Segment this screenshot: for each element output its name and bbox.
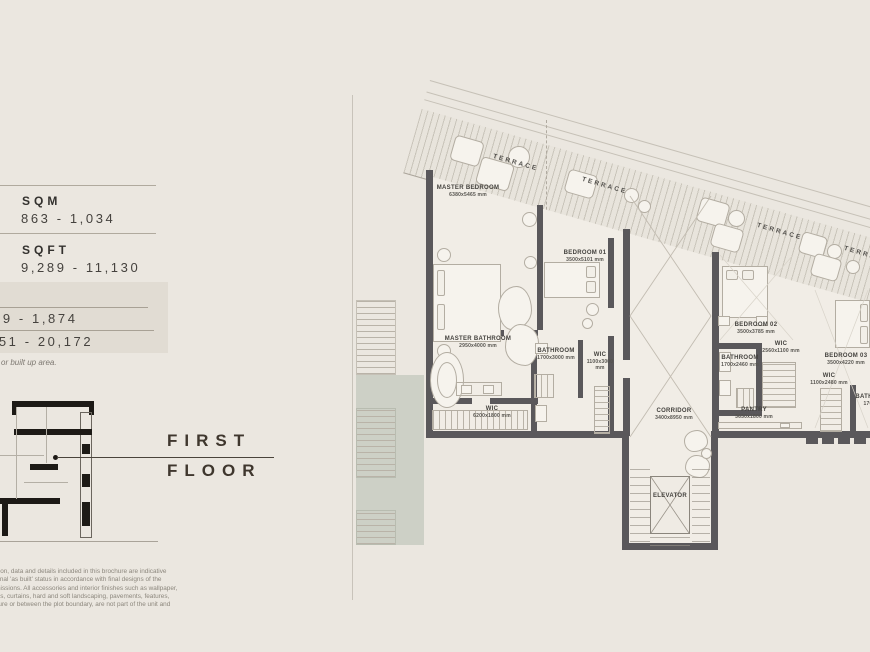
sqft-value: 9,289 - 11,130 (21, 260, 140, 275)
wardrobe (594, 386, 610, 434)
planter-box (822, 436, 834, 444)
section-line (16, 407, 17, 499)
sink (483, 385, 494, 394)
side-table (524, 256, 537, 269)
room-label: BEDROOM 033500x4220 mm (825, 353, 868, 366)
sink (461, 385, 472, 394)
pillow (586, 266, 596, 278)
room-label: WIC6200x1800 mm (473, 406, 511, 419)
wardrobe (820, 388, 842, 432)
divider (0, 307, 148, 308)
pillow (437, 304, 445, 330)
room-label: CORRIDOR3400x8950 mm (655, 408, 693, 421)
disclaimer-line: rmation, data and details included in th… (0, 568, 186, 576)
room-label: BATHROOM1700x2460 mm (721, 355, 759, 368)
pillow (860, 326, 868, 344)
disclaimer-line: goods, curtains, hard and soft landscapi… (0, 593, 186, 601)
terrace-table (846, 260, 860, 274)
room-label: WIC2560x1100 mm (762, 341, 799, 354)
room-label: BEDROOM 013500x5101 mm (564, 250, 607, 263)
terrace-table (638, 200, 651, 213)
room-label: WIC1100x2480 mm (810, 373, 847, 386)
shower (534, 374, 554, 398)
floor-title-line1: FIRST (167, 431, 251, 451)
toilet (535, 405, 547, 422)
wall-segment (623, 229, 630, 360)
floor-title-line2: FLOOR (167, 461, 262, 481)
pillow (437, 270, 445, 296)
terrace-table (728, 210, 745, 227)
section-line (24, 482, 68, 483)
room-label: BATHROOM1700x29 (855, 394, 870, 407)
planter-hatch (356, 300, 396, 375)
room-label: ELEVATOR (653, 493, 687, 499)
section-slab (12, 401, 94, 407)
bathtub-inner (437, 362, 457, 398)
room-label: BATHROOM1700x3000 mm (537, 348, 575, 361)
ottoman (582, 318, 593, 329)
plot-range-sqm: 49 - 1,874 (0, 311, 78, 326)
pillow (742, 270, 754, 280)
disclaimer-line: permissions. All accessories and interio… (0, 585, 186, 593)
wall-segment (537, 205, 543, 330)
room-label: MASTER BEDROOM6380x5465 mm (437, 185, 500, 198)
room-label: BEDROOM 023500x3785 mm (735, 322, 778, 335)
plot-range-box: 49 - 1,874 951 - 20,172 (0, 282, 168, 353)
divider (0, 330, 154, 331)
brochure-page: { "colors": { "background": "#ebe7e0", "… (0, 0, 870, 652)
planter-hatch (356, 408, 396, 478)
disclaimer-line: the final 'as built' status in accordanc… (0, 576, 186, 584)
wall-segment (622, 438, 629, 550)
divider (0, 233, 156, 234)
room-label: PANTRY3650x1800 mm (735, 407, 773, 420)
floor-leader-line (57, 457, 274, 458)
room-label: MASTER BATHROOM2950x4000 mm (445, 336, 511, 349)
divider (0, 185, 156, 186)
wall-segment (712, 252, 719, 432)
ground-line (0, 541, 158, 542)
wall-segment (712, 343, 762, 349)
nightstand (718, 316, 730, 326)
sqm-label: SQM (22, 194, 61, 208)
stair-hatch (650, 534, 690, 546)
pillow (586, 281, 596, 293)
nightstand (437, 248, 451, 262)
wardrobe (762, 362, 796, 408)
stair-hatch (692, 468, 710, 542)
pantry-sink (780, 423, 790, 428)
sqft-label: SQFT (22, 243, 70, 257)
planter-box (854, 436, 866, 444)
ottoman (586, 303, 599, 316)
boundary-dashed-line (546, 120, 547, 220)
wall-segment (623, 378, 630, 436)
section-line (46, 407, 47, 463)
planter-hatch (356, 510, 396, 545)
section-slab (30, 464, 58, 470)
wall-segment (850, 385, 856, 435)
pillow (860, 304, 868, 322)
sqm-value: 863 - 1,034 (21, 211, 115, 226)
section-slab (14, 429, 92, 435)
wall-segment (711, 438, 718, 550)
section-slab (0, 498, 60, 504)
decor-stone (701, 448, 712, 459)
stair-hatch (630, 468, 650, 542)
shower (736, 388, 754, 408)
section-window (82, 474, 90, 487)
section-window (82, 444, 90, 454)
wall-segment (608, 238, 614, 308)
section-wall (2, 504, 8, 536)
section-line (0, 455, 44, 456)
disclaimer-line: rochure or between the plot boundary, ar… (0, 601, 186, 609)
toilet (719, 380, 731, 396)
section-window (82, 502, 90, 526)
elevator-shaft (650, 476, 690, 534)
planter-box (806, 436, 818, 444)
plot-range-sqft: 951 - 20,172 (0, 334, 93, 349)
disclaimer-text: rmation, data and details included in th… (0, 568, 186, 609)
footnote: or built up area. (1, 358, 57, 367)
planter-box (838, 436, 850, 444)
sheet-edge-line (352, 95, 353, 600)
pillow (726, 270, 738, 280)
side-table (522, 212, 537, 227)
room-label: WIC1100x3000 mm (582, 352, 618, 371)
